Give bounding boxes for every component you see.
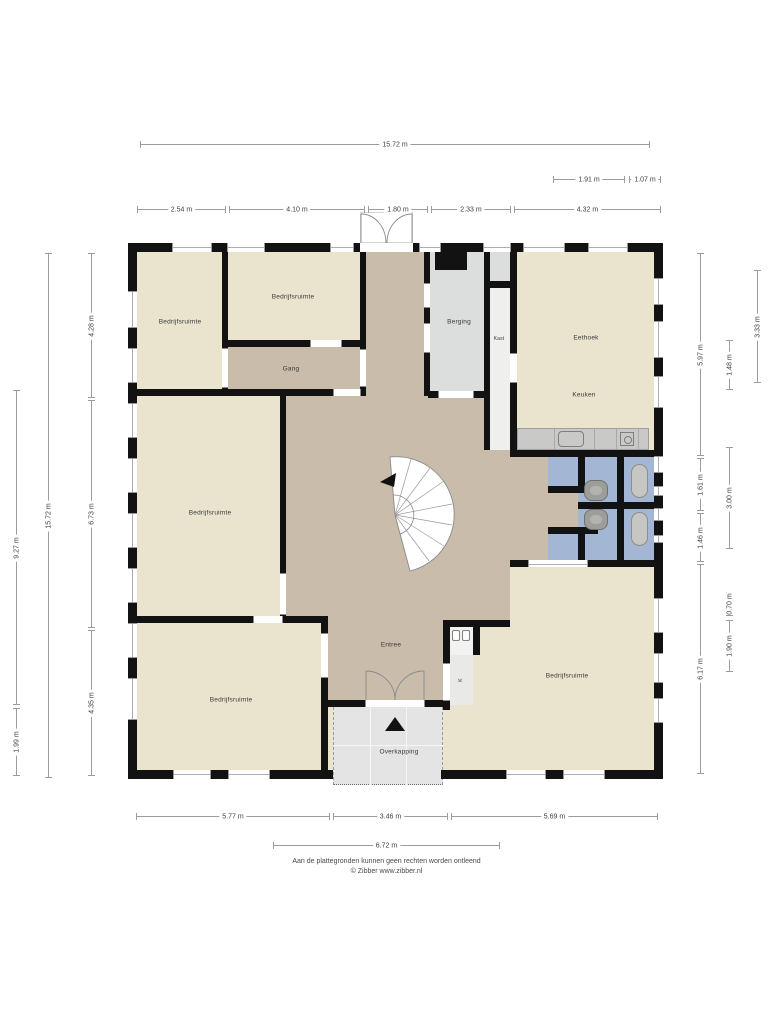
hob-icon (620, 432, 634, 446)
footer-disclaimer: Aan de plattegronden kunnen geen rechten… (0, 857, 773, 877)
window (419, 243, 441, 252)
room-label-kast: Kast (494, 336, 505, 342)
dimension-top-total: 15.72 m (140, 144, 650, 145)
spiral-staircase-icon (368, 448, 488, 573)
dimension: 3.00 m (729, 447, 730, 549)
door-opening (360, 349, 366, 387)
door-opening (333, 389, 361, 396)
window (654, 321, 663, 358)
room-label-gang: Gang (283, 366, 300, 373)
door-opening (310, 340, 342, 347)
dimension: 4.35 m (91, 630, 92, 776)
window (654, 456, 663, 473)
window (654, 508, 663, 521)
dimension: 1.48 m (729, 340, 730, 390)
wall (137, 616, 328, 623)
dimension: 6.17 m (700, 564, 701, 774)
wall (441, 770, 663, 779)
window (654, 698, 663, 723)
window (128, 678, 137, 720)
dimension: 1.07 m (629, 179, 661, 180)
dimension: 5.97 m (700, 253, 701, 456)
shower-icon (631, 512, 648, 546)
dimension: 0.70 m (729, 592, 730, 616)
entrance-door-opening (365, 700, 425, 707)
room-label-berging: Berging (447, 319, 471, 326)
dimension: 6.73 m (91, 400, 92, 628)
dimension: 4.10 m (229, 209, 365, 210)
entrance-door-arc-top (360, 212, 413, 243)
door-opening (443, 663, 450, 701)
room-label-bedrijfsruimte-tl: Bedrijfsruimte (159, 319, 202, 326)
door-opening (424, 323, 430, 353)
dimension: 3.33 m (757, 270, 758, 383)
entrance-door-arc-bottom (365, 669, 425, 700)
window (330, 243, 354, 252)
wall (222, 340, 365, 347)
room-label-keuken: Keuken (572, 392, 595, 399)
door-opening (280, 573, 286, 615)
door-opening (510, 353, 517, 383)
room-label-k-closet: K (458, 678, 464, 682)
dimension: 9.27 m (16, 390, 17, 705)
meter-fixture-icon (462, 630, 470, 641)
door-opening (222, 348, 228, 388)
hall-corridor-top (366, 252, 424, 396)
shower-icon (631, 464, 648, 498)
dimension: 1.61 m (700, 458, 701, 511)
wall (473, 627, 480, 655)
wall (435, 252, 467, 270)
dimension: 4.32 m (514, 209, 661, 210)
window (654, 278, 663, 305)
wall (137, 389, 366, 396)
dimension-left-total: 15.72 m (48, 253, 49, 778)
window (228, 770, 270, 779)
floorplan-page: Bedrijfsruimte Bedrijfsruimte Gang Bergi… (0, 0, 773, 1030)
room-label-bedrijfsruimte-tm: Bedrijfsruimte (272, 294, 315, 301)
dimension: 3.46 m (333, 816, 448, 817)
sink-icon (558, 431, 584, 447)
dimension: 1.90 m (729, 620, 730, 672)
room-label-entree: Entree (381, 642, 401, 649)
room-label-bedrijfsruimte-br: Bedrijfsruimte (546, 673, 589, 680)
meter-fixture-icon (452, 630, 460, 641)
dimension: 1.99 m (16, 708, 17, 776)
dimension: 2.54 m (137, 209, 226, 210)
window (128, 513, 137, 548)
door-opening (438, 391, 474, 398)
dimension: 6.72 m (273, 845, 500, 846)
dimension: 1.80 m (368, 209, 428, 210)
dimension: 1.91 m (553, 179, 625, 180)
floor-plan: Bedrijfsruimte Bedrijfsruimte Gang Bergi… (128, 243, 663, 779)
window (128, 348, 137, 383)
dimension: 1.46 m (700, 513, 701, 562)
window (128, 623, 137, 658)
wall (578, 502, 654, 509)
window (563, 770, 605, 779)
window (128, 291, 137, 328)
door-opening (424, 283, 430, 308)
door-opening (253, 616, 283, 623)
footer-line1: Aan de plattegronden kunnen geen rechten… (0, 857, 773, 867)
toilet-icon (584, 480, 608, 501)
window (128, 458, 137, 493)
window (654, 486, 663, 496)
north-arrow (385, 717, 405, 731)
window (172, 243, 212, 252)
room-label-bedrijfsruimte-bl: Bedrijfsruimte (210, 697, 253, 704)
footer-line2: © Zibber www.zibber.nl (0, 867, 773, 877)
wall (484, 281, 517, 288)
door-opening (321, 633, 328, 678)
window (588, 243, 628, 252)
room-label-overkapping: Overkapping (379, 749, 418, 756)
bath-corridor-stub (548, 493, 578, 527)
window (654, 598, 663, 633)
dimension: 5.69 m (451, 816, 658, 817)
window (128, 568, 137, 603)
window (128, 403, 137, 438)
window (523, 243, 565, 252)
wall (578, 534, 585, 560)
window (227, 243, 265, 252)
dimension: 2.33 m (431, 209, 511, 210)
bath-corridor (510, 457, 548, 560)
window (654, 376, 663, 408)
toilet-icon (584, 509, 608, 530)
entrance-door-opening (360, 243, 413, 252)
wall (510, 450, 654, 457)
window (483, 243, 511, 252)
dimension: 4.28 m (91, 253, 92, 398)
room-label-bedrijfsruimte-ml: Bedrijfsruimte (189, 510, 232, 517)
wall (443, 620, 510, 627)
room-label-eethoek: Eethoek (573, 335, 598, 342)
window (654, 653, 663, 683)
room-kast-floor (490, 288, 510, 450)
wall (578, 457, 585, 486)
dimension: 5.77 m (136, 816, 330, 817)
interior-window (528, 560, 588, 567)
window (654, 535, 663, 543)
window (506, 770, 546, 779)
window (173, 770, 211, 779)
